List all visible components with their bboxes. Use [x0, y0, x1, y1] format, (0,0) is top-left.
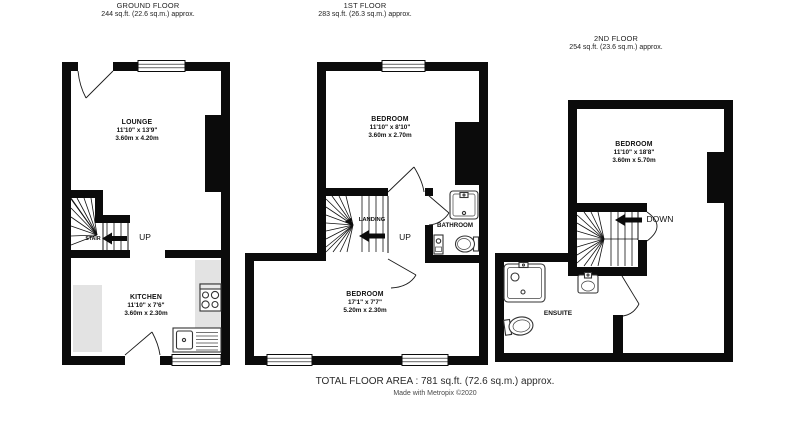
room-name: LOUNGE [77, 119, 197, 127]
room-name: BEDROOM [574, 141, 694, 149]
up-arrow-icon [359, 230, 385, 242]
down-label: DOWN [640, 214, 680, 224]
landing-label: LANDING [344, 217, 400, 223]
lounge-label: LOUNGE 11'10" x 13'9" 3.60m x 4.20m [77, 119, 197, 142]
room-name: KITCHEN [86, 294, 206, 302]
first-floor-area: 283 sq.ft. (26.3 sq.m.) approx. [275, 10, 455, 19]
total-floor-area: TOTAL FLOOR AREA : 781 sq.ft. (72.6 sq.m… [135, 376, 735, 387]
room-dims-metric: 3.60m x 5.70m [574, 157, 694, 165]
room-name: BEDROOM [305, 291, 425, 299]
room-dims-imperial: 11'10" x 8'10" [330, 124, 450, 132]
window [382, 61, 425, 72]
room-dims-imperial: 11'10" x 13'9" [77, 127, 197, 135]
window [267, 355, 312, 366]
chimney-breast [707, 152, 724, 203]
room-name: BEDROOM [330, 116, 450, 124]
ensuite-label: ENSUITE [520, 310, 596, 317]
kitchen-label: KITCHEN 11'10" x 7'6" 3.60m x 2.30m [86, 294, 206, 317]
door-swing [388, 167, 424, 192]
stair-label: STAIR [74, 236, 112, 242]
room-dims-metric: 3.60m x 2.70m [330, 132, 450, 140]
room-dims-metric: 3.60m x 2.30m [86, 310, 206, 318]
first-up-label: UP [387, 232, 423, 242]
ground-floor-header: GROUND FLOOR 244 sq.ft. (22.6 sq.m.) app… [58, 1, 238, 19]
door-swing [622, 276, 639, 316]
staircase [326, 196, 388, 253]
toilet-icon [503, 315, 534, 337]
second-floor-title: 2ND FLOOR [526, 34, 706, 43]
floorplan-canvas: GROUND FLOOR 244 sq.ft. (22.6 sq.m.) app… [0, 0, 800, 439]
first-floor-header: 1ST FLOOR 283 sq.ft. (26.3 sq.m.) approx… [275, 1, 455, 19]
window [138, 61, 185, 72]
bathroom-label: BATHROOM [423, 222, 487, 229]
bedroom-label: BEDROOM 11'10" x 8'10" 3.60m x 2.70m [330, 116, 450, 139]
first-floor-title: 1ST FLOOR [275, 1, 455, 10]
first-floor-plan [245, 55, 495, 375]
basin-icon [578, 273, 598, 294]
room-dims-metric: 3.60m x 4.20m [77, 135, 197, 143]
second-floor-area: 254 sq.ft. (23.6 sq.m.) approx. [526, 43, 706, 52]
ground-floor-area: 244 sq.ft. (22.6 sq.m.) approx. [58, 10, 238, 19]
toilet-icon [456, 236, 479, 252]
room-dims-imperial: 11'10" x 7'6" [86, 302, 206, 310]
room-dims-imperial: 17'1" x 7'7" [305, 299, 425, 307]
door-swing [125, 332, 160, 355]
chimney-breast [455, 122, 479, 185]
bedroom-label: BEDROOM 17'1" x 7'7" 5.20m x 2.30m [305, 291, 425, 314]
room-dims-metric: 5.20m x 2.30m [305, 307, 425, 315]
kitchen-sink-icon [173, 328, 221, 352]
window [402, 355, 448, 366]
door-swing [388, 259, 416, 288]
bedroom-label: BEDROOM 11'10" x 18'8" 3.60m x 5.70m [574, 141, 694, 164]
ground-floor-plan [55, 55, 240, 375]
ground-floor-title: GROUND FLOOR [58, 1, 238, 10]
room-dims-imperial: 11'10" x 18'8" [574, 149, 694, 157]
door-swing [428, 195, 449, 225]
door-swing [78, 71, 113, 98]
second-floor-header: 2ND FLOOR 254 sq.ft. (23.6 sq.m.) approx… [526, 34, 706, 52]
second-floor-plan [490, 85, 745, 375]
window [172, 355, 221, 366]
shower-icon [450, 191, 478, 219]
chimney-breast [205, 115, 221, 192]
shower-icon [504, 263, 545, 303]
ground-up-label: UP [128, 232, 162, 242]
basin-icon [434, 235, 443, 254]
metropix-credit: Made with Metropix ©2020 [135, 390, 735, 397]
